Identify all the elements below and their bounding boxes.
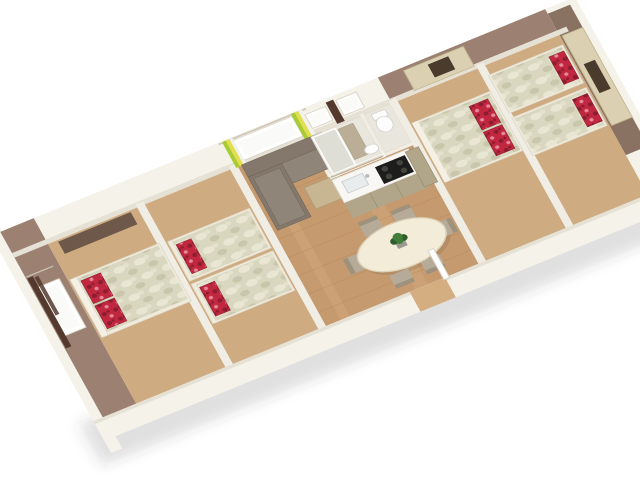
floorplan-render: 3D isometric floor plan render of a mobi… — [0, 0, 640, 480]
floorplan-canvas: 3D isometric floor plan render of a mobi… — [0, 0, 640, 480]
